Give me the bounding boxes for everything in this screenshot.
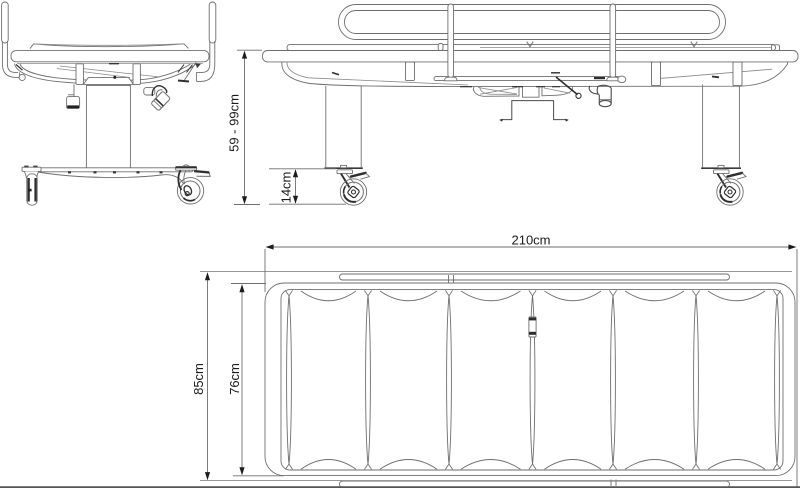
svg-text:210cm: 210cm bbox=[511, 232, 550, 247]
svg-text:59 - 99cm: 59 - 99cm bbox=[227, 94, 242, 152]
svg-text:14cm: 14cm bbox=[279, 172, 294, 204]
svg-text:85cm: 85cm bbox=[191, 363, 206, 395]
svg-text:76cm: 76cm bbox=[227, 363, 242, 395]
